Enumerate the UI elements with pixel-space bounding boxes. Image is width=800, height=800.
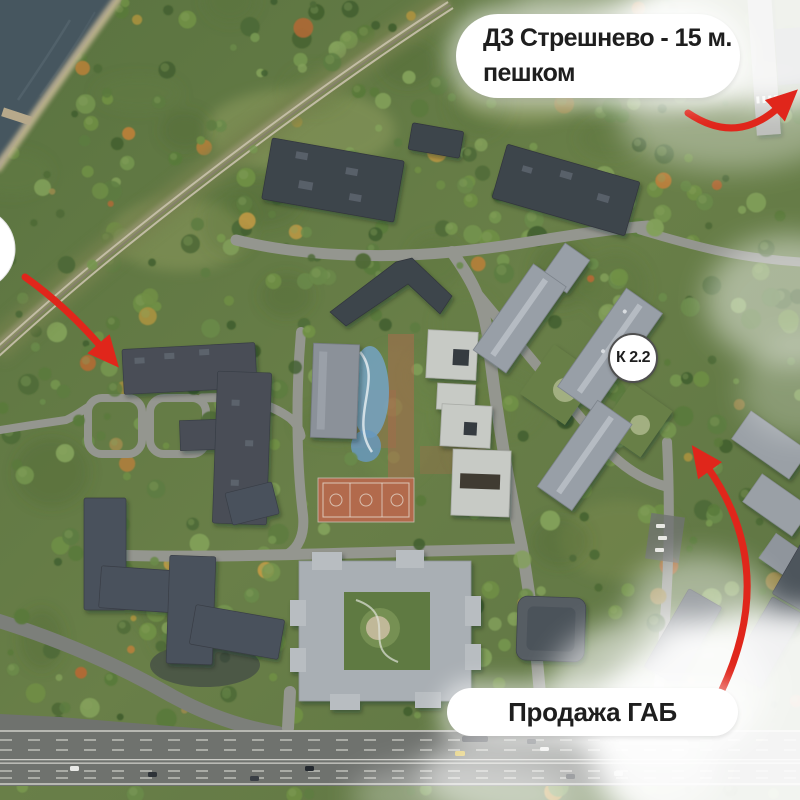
label-metro-distance: Д3 Стрешнево - 15 м. пешком xyxy=(456,14,740,98)
label-building-k22: К 2.2 xyxy=(608,333,658,383)
aerial-masterplan-render: Д3 Стрешнево - 15 м. пешком К 2.2 Продаж… xyxy=(0,0,800,800)
label-metro-line1: Д3 Стрешнево - 15 м. xyxy=(483,21,740,56)
aerial-map xyxy=(0,0,800,800)
building-school xyxy=(310,343,359,439)
label-sale-gab: Продажа ГАБ xyxy=(447,688,738,736)
label-metro-line2: пешком xyxy=(483,56,740,91)
sports-court xyxy=(318,478,414,522)
courtyard-perimeter-block xyxy=(290,550,481,710)
